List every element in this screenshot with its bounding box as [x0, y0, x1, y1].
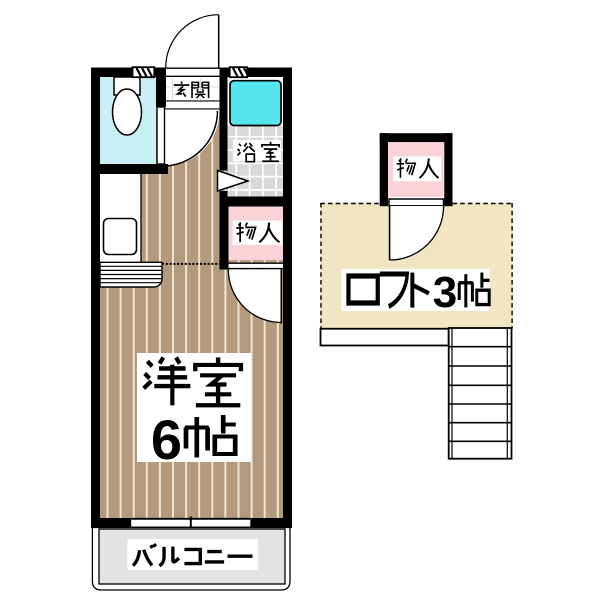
svg-text:6: 6: [151, 408, 182, 471]
svg-text:3: 3: [433, 268, 457, 317]
